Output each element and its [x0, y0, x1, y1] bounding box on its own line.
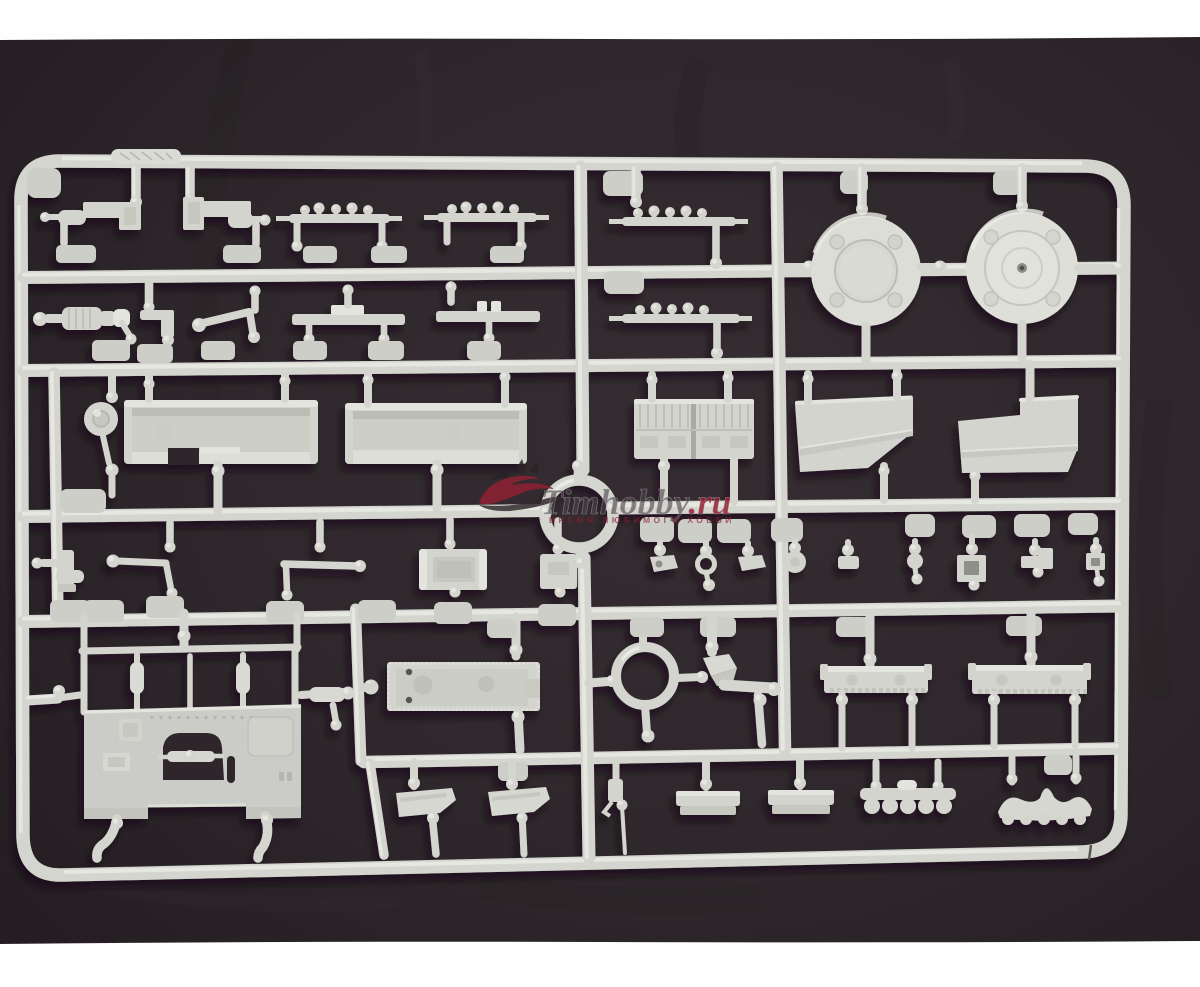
svg-text:ВРЕМЯ ЛЮБИМОГО ХОББИ: ВРЕМЯ ЛЮБИМОГО ХОББИ — [549, 515, 735, 525]
